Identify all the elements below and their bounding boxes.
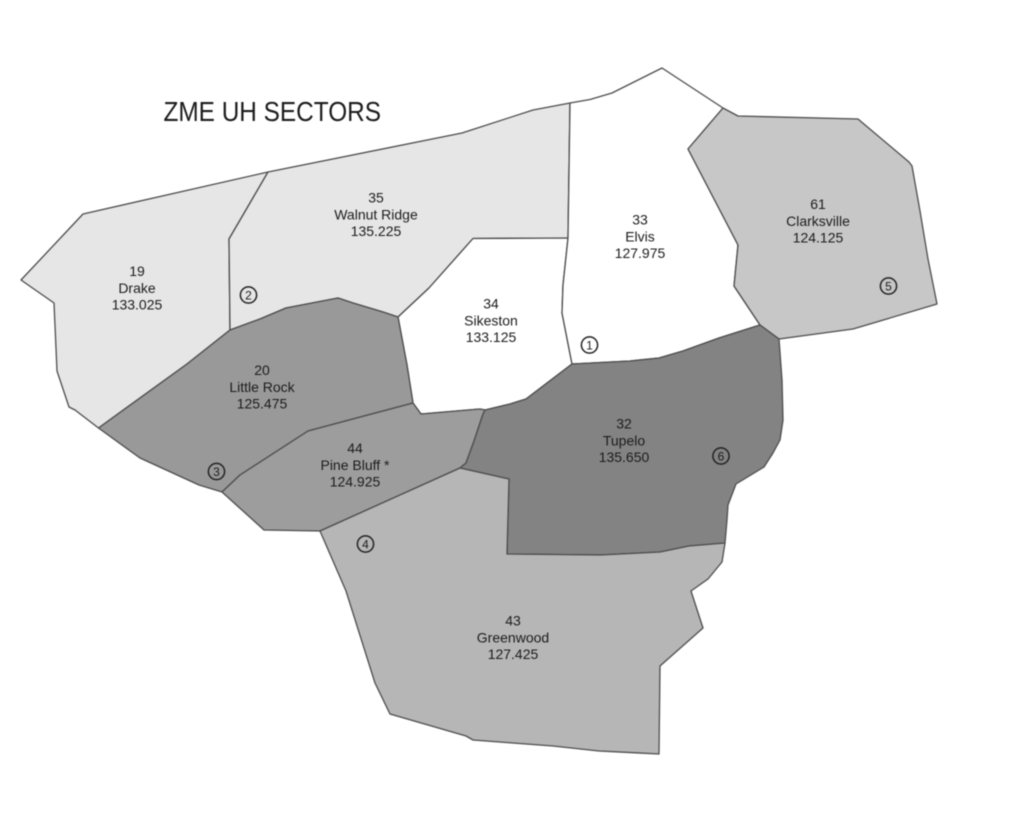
svg-text:133.025: 133.025	[112, 297, 163, 313]
svg-text:Clarksville: Clarksville	[786, 213, 850, 229]
svg-text:5: 5	[885, 279, 892, 293]
svg-text:43: 43	[505, 613, 521, 629]
svg-text:1: 1	[586, 338, 593, 352]
svg-text:61: 61	[810, 196, 826, 212]
svg-text:Walnut Ridge: Walnut Ridge	[334, 206, 418, 222]
svg-text:124.925: 124.925	[330, 474, 381, 490]
svg-text:133.125: 133.125	[466, 329, 517, 345]
svg-text:ZME UH SECTORS: ZME UH SECTORS	[164, 96, 382, 127]
svg-text:3: 3	[213, 465, 220, 479]
svg-text:Sikeston: Sikeston	[464, 312, 518, 328]
svg-text:Drake: Drake	[118, 280, 156, 296]
svg-text:19: 19	[129, 263, 145, 279]
svg-text:44: 44	[347, 440, 363, 456]
svg-text:35: 35	[368, 190, 384, 206]
svg-text:32: 32	[616, 416, 632, 432]
svg-text:124.125: 124.125	[793, 230, 844, 246]
svg-text:127.425: 127.425	[488, 646, 539, 662]
svg-text:Little Rock: Little Rock	[229, 379, 295, 395]
svg-text:33: 33	[632, 212, 648, 228]
svg-text:Pine Bluff *: Pine Bluff *	[320, 457, 390, 473]
svg-text:6: 6	[718, 449, 725, 463]
svg-text:Elvis: Elvis	[625, 228, 655, 244]
svg-text:127.975: 127.975	[615, 245, 666, 261]
svg-text:Tupelo: Tupelo	[603, 432, 646, 448]
svg-text:20: 20	[254, 362, 270, 378]
svg-text:2: 2	[245, 288, 252, 302]
svg-text:125.475: 125.475	[237, 396, 288, 412]
svg-text:135.225: 135.225	[351, 223, 402, 239]
svg-text:135.650: 135.650	[599, 449, 650, 465]
svg-text:Greenwood: Greenwood	[477, 629, 549, 645]
svg-text:4: 4	[362, 537, 369, 551]
svg-text:34: 34	[483, 296, 499, 312]
